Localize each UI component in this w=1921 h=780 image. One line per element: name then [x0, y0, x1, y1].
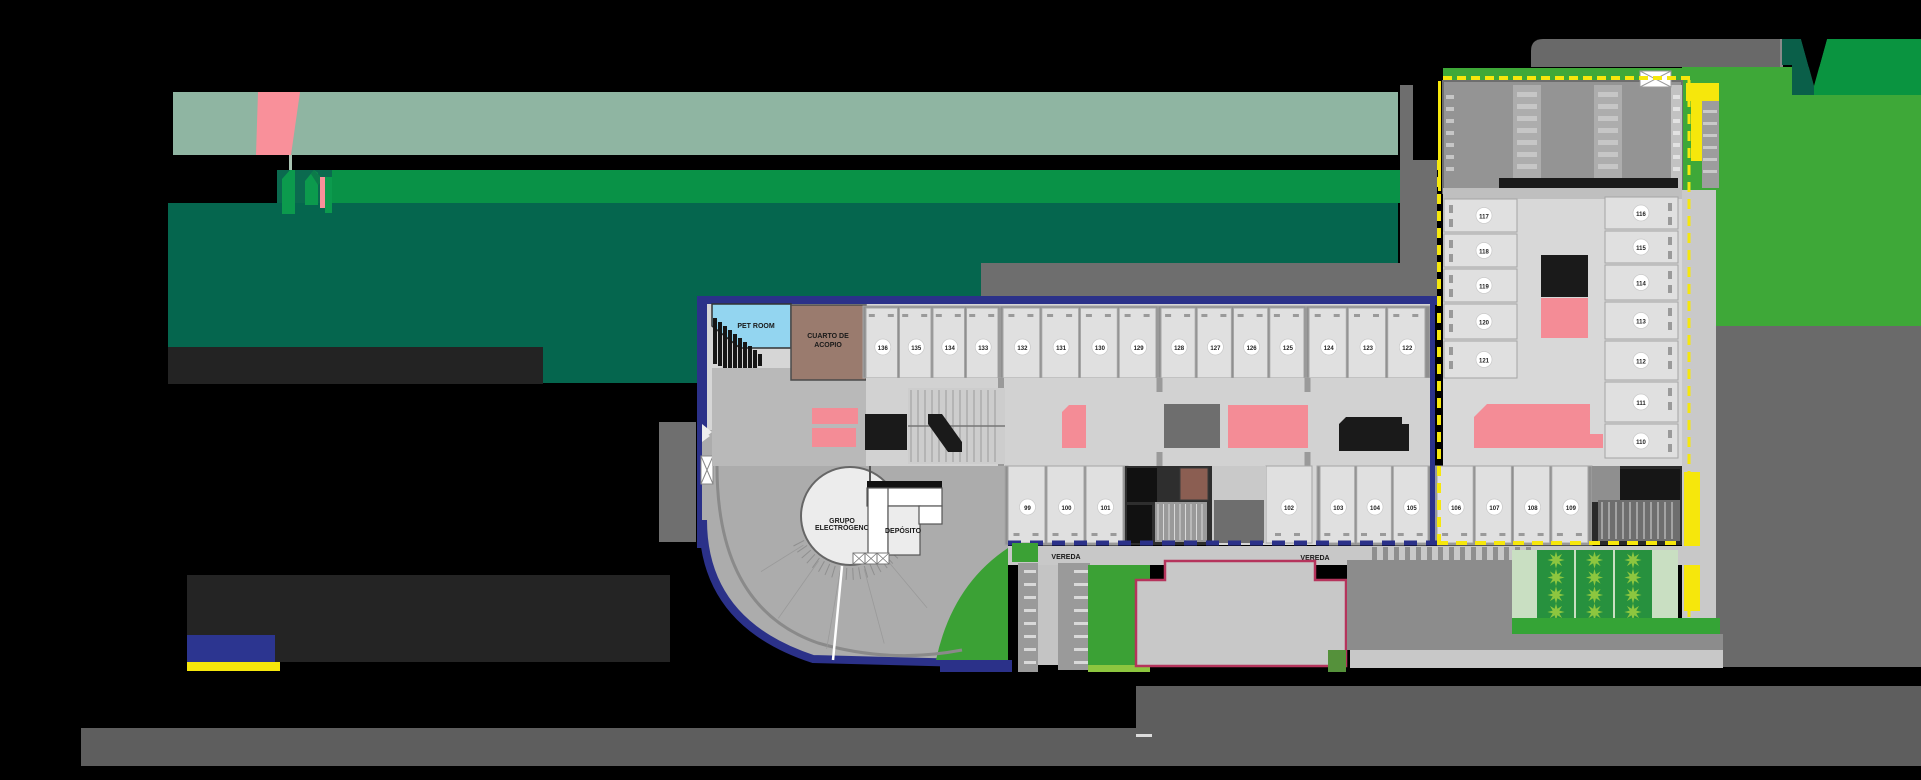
- svg-text:100: 100: [1061, 506, 1072, 512]
- svg-text:135: 135: [911, 346, 922, 352]
- svg-text:118: 118: [1479, 250, 1489, 256]
- svg-text:126: 126: [1247, 346, 1258, 352]
- svg-text:125: 125: [1283, 346, 1294, 352]
- svg-text:134: 134: [945, 346, 956, 352]
- svg-text:111: 111: [1636, 401, 1646, 407]
- svg-text:119: 119: [1479, 285, 1489, 291]
- svg-text:108: 108: [1528, 506, 1539, 512]
- svg-text:113: 113: [1636, 320, 1646, 326]
- svg-text:101: 101: [1100, 506, 1111, 512]
- svg-text:109: 109: [1566, 506, 1577, 512]
- svg-text:123: 123: [1363, 346, 1374, 352]
- svg-text:114: 114: [1636, 282, 1646, 288]
- svg-text:128: 128: [1174, 346, 1185, 352]
- svg-text:116: 116: [1636, 212, 1646, 218]
- svg-text:122: 122: [1402, 346, 1413, 352]
- svg-text:VEREDA: VEREDA: [1051, 554, 1080, 561]
- svg-text:PET ROOM: PET ROOM: [737, 323, 775, 330]
- svg-text:112: 112: [1636, 360, 1646, 366]
- svg-text:ELECTRÓGENO: ELECTRÓGENO: [815, 523, 870, 532]
- svg-text:130: 130: [1095, 346, 1106, 352]
- svg-text:133: 133: [978, 346, 989, 352]
- svg-text:104: 104: [1370, 506, 1381, 512]
- svg-text:107: 107: [1489, 506, 1500, 512]
- svg-text:117: 117: [1479, 215, 1489, 221]
- svg-text:131: 131: [1056, 346, 1067, 352]
- svg-text:124: 124: [1324, 346, 1335, 352]
- svg-text:127: 127: [1210, 346, 1221, 352]
- svg-text:GRUPO: GRUPO: [829, 518, 855, 525]
- svg-text:129: 129: [1134, 346, 1145, 352]
- svg-text:99: 99: [1024, 506, 1031, 512]
- svg-text:110: 110: [1636, 440, 1646, 446]
- svg-text:CUARTO DE: CUARTO DE: [807, 333, 849, 340]
- svg-text:136: 136: [878, 346, 889, 352]
- svg-text:105: 105: [1407, 506, 1418, 512]
- svg-text:DEPÓSITO: DEPÓSITO: [885, 526, 922, 535]
- svg-text:102: 102: [1284, 506, 1295, 512]
- svg-text:103: 103: [1333, 506, 1344, 512]
- svg-text:132: 132: [1017, 346, 1028, 352]
- svg-text:121: 121: [1479, 359, 1490, 365]
- svg-text:106: 106: [1451, 506, 1462, 512]
- svg-text:120: 120: [1479, 321, 1490, 327]
- svg-text:ACOPIO: ACOPIO: [814, 342, 842, 349]
- svg-text:115: 115: [1636, 246, 1646, 252]
